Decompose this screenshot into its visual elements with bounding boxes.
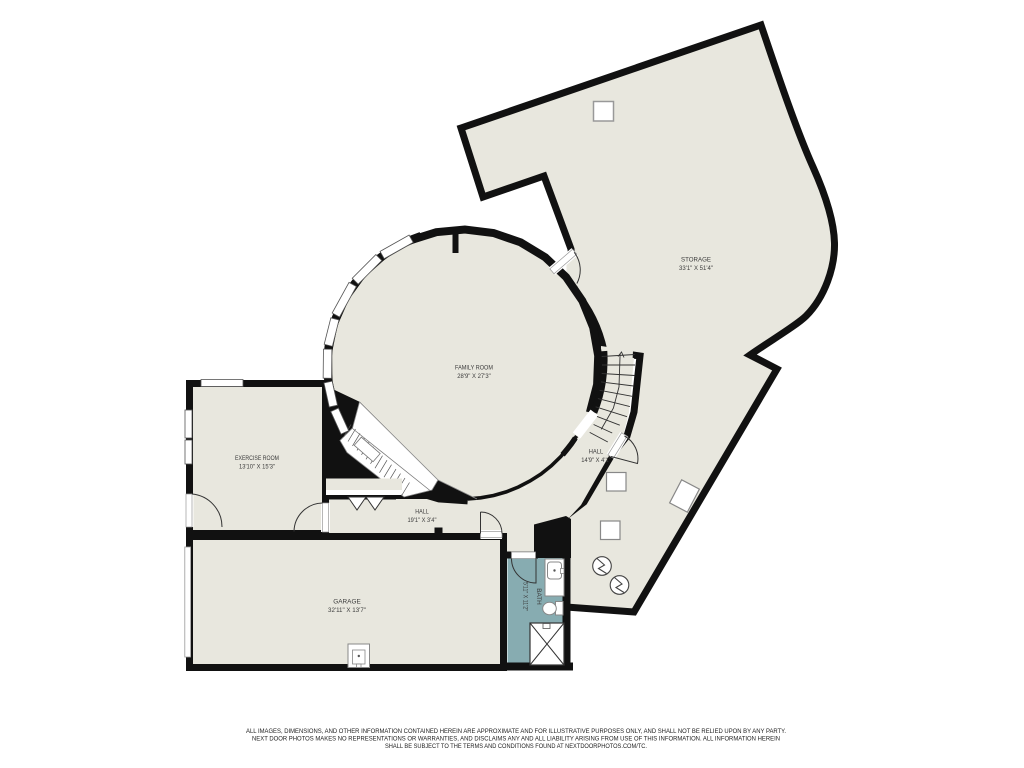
svg-text:SHALL BE SUBJECT TO THE TERMS: SHALL BE SUBJECT TO THE TERMS AND CONDIT… (385, 744, 647, 750)
svg-text:BATH: BATH (535, 588, 542, 605)
svg-text:ALL IMAGES, DIMENSIONS, AND OT: ALL IMAGES, DIMENSIONS, AND OTHER INFORM… (246, 729, 786, 735)
svg-text:FAMILY ROOM: FAMILY ROOM (455, 365, 493, 372)
svg-text:14'9" X 4'1": 14'9" X 4'1" (581, 457, 611, 464)
svg-text:33'1" X 51'4": 33'1" X 51'4" (679, 265, 714, 272)
svg-text:GARAGE: GARAGE (333, 599, 361, 606)
svg-text:HALL: HALL (415, 509, 429, 516)
svg-text:STORAGE: STORAGE (681, 257, 711, 264)
svg-text:28'9" X 27'3": 28'9" X 27'3" (457, 373, 491, 380)
svg-text:HALL: HALL (589, 449, 604, 456)
svg-text:5'11" X 11'2": 5'11" X 11'2" (522, 582, 529, 611)
svg-text:32'11" X 13'7": 32'11" X 13'7" (328, 607, 367, 614)
svg-text:19'1" X 3'4": 19'1" X 3'4" (408, 517, 437, 524)
svg-text:13'10" X 15'3": 13'10" X 15'3" (239, 464, 275, 471)
svg-text:EXERCISE ROOM: EXERCISE ROOM (235, 455, 279, 462)
svg-text:NEXT DOOR PHOTOS MAKES NO REPR: NEXT DOOR PHOTOS MAKES NO REPRESENTATION… (252, 737, 780, 743)
